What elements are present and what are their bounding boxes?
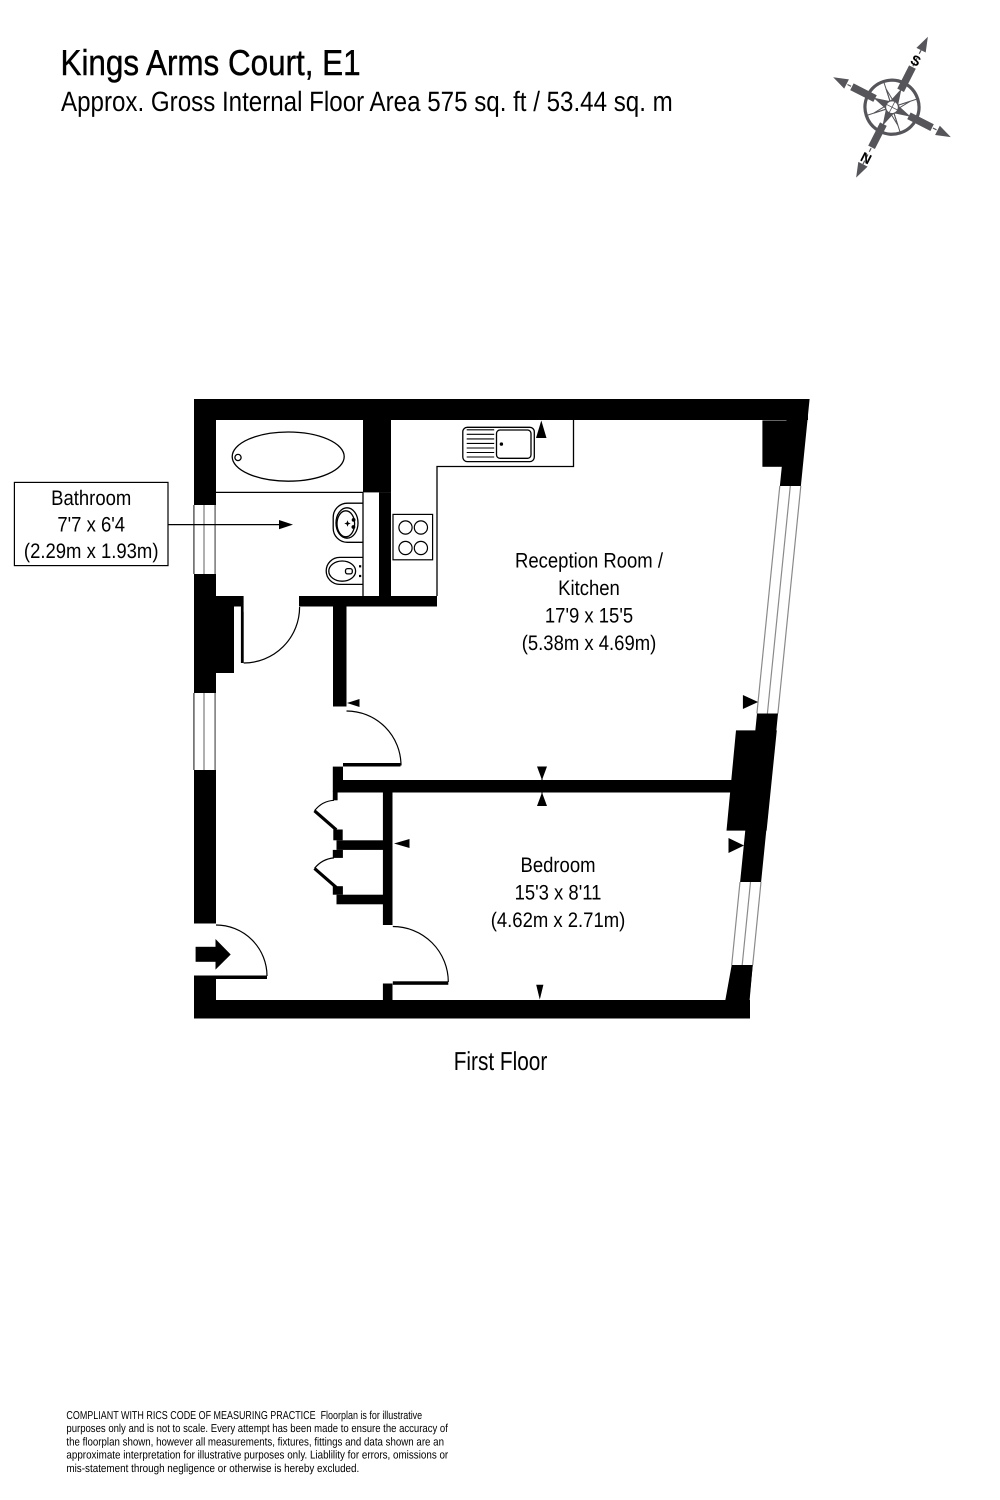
svg-text:COMPLIANT WITH RICS CODE OF ME: COMPLIANT WITH RICS CODE OF MEASURING PR… xyxy=(66,1410,422,1422)
svg-text:purposes only and is not to sc: purposes only and is not to scale. Every… xyxy=(66,1423,448,1435)
svg-text:Kings Arms Court, E1: Kings Arms Court, E1 xyxy=(61,42,361,83)
svg-text:(5.38m x 4.69m): (5.38m x 4.69m) xyxy=(522,632,657,655)
svg-text:approximate interpretation for: approximate interpretation for illustrat… xyxy=(66,1450,448,1462)
svg-text:Reception Room /: Reception Room / xyxy=(515,550,663,573)
svg-text:Bedroom: Bedroom xyxy=(521,854,596,877)
svg-text:Bathroom: Bathroom xyxy=(51,487,131,510)
svg-text:(2.29m x 1.93m): (2.29m x 1.93m) xyxy=(24,540,159,563)
svg-text:7'7 x 6'4: 7'7 x 6'4 xyxy=(57,514,125,537)
svg-text:(4.62m x 2.71m): (4.62m x 2.71m) xyxy=(491,909,626,932)
svg-text:mis-statement through negligen: mis-statement through negligence or othe… xyxy=(66,1463,359,1475)
svg-text:Approx. Gross Internal Floor A: Approx. Gross Internal Floor Area 575 sq… xyxy=(61,86,673,117)
svg-text:15'3 x 8'11: 15'3 x 8'11 xyxy=(515,882,602,905)
svg-text:Kitchen: Kitchen xyxy=(558,577,620,600)
svg-text:the floorplan shown, however a: the floorplan shown, however all measure… xyxy=(66,1436,444,1448)
svg-text:17'9 x 15'5: 17'9 x 15'5 xyxy=(545,605,633,628)
svg-text:First Floor: First Floor xyxy=(454,1046,548,1076)
